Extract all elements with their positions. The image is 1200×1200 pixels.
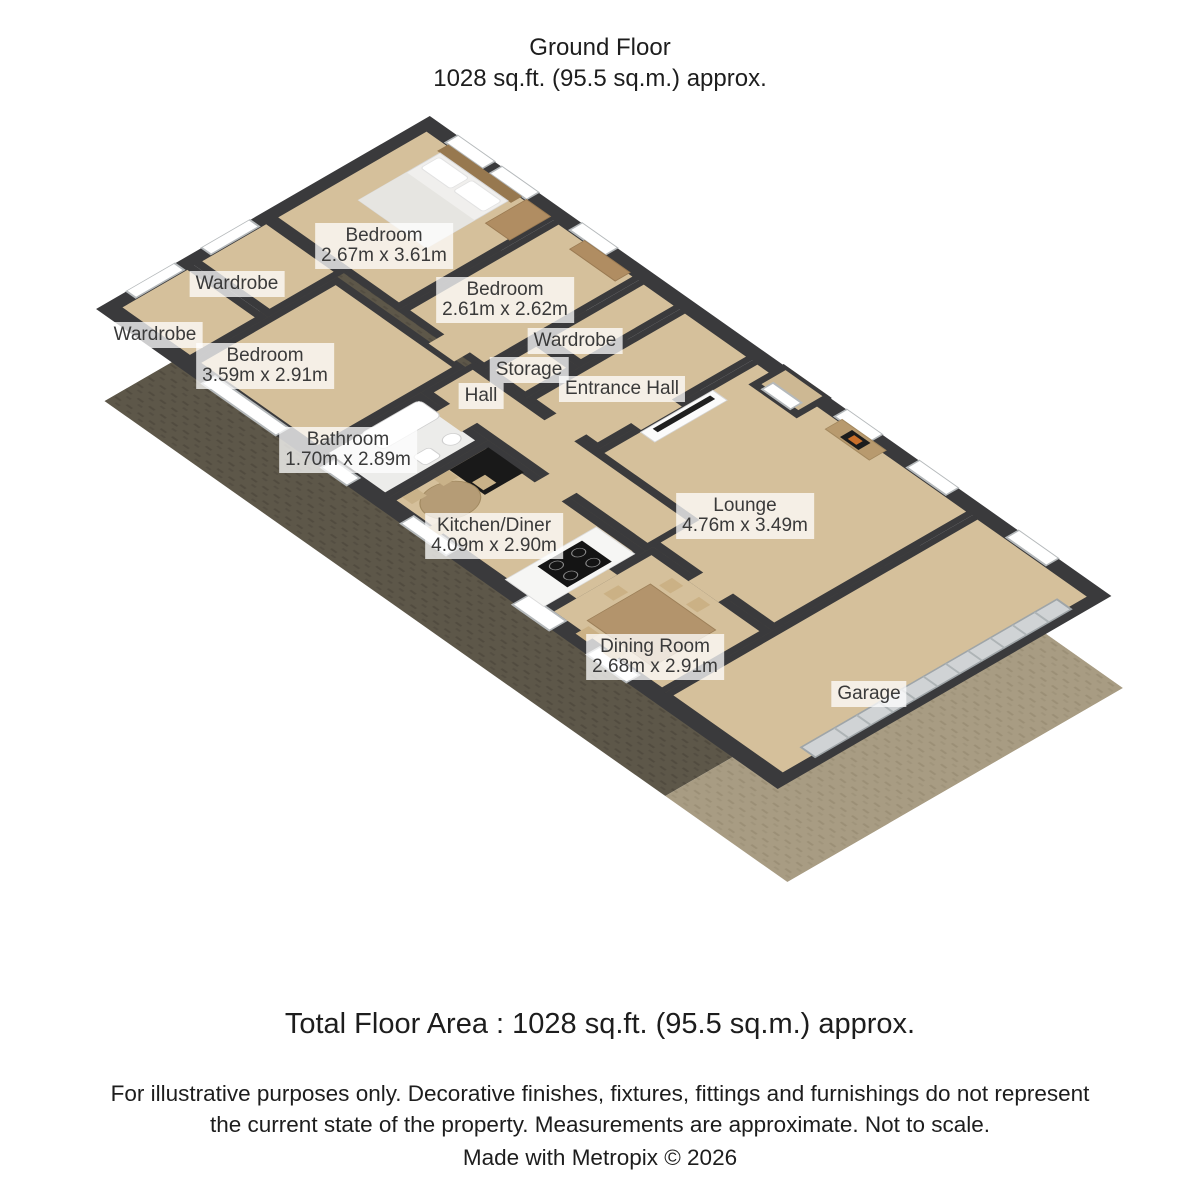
disclaimer-text: For illustrative purposes only. Decorati… xyxy=(95,1078,1105,1140)
page-title: Ground Floor xyxy=(0,32,1200,63)
credit-text: Made with Metropix © 2026 xyxy=(0,1145,1200,1171)
floorplan-page: Ground Floor 1028 sq.ft. (95.5 sq.m.) ap… xyxy=(0,0,1200,1200)
page-subtitle: 1028 sq.ft. (95.5 sq.m.) approx. xyxy=(0,63,1200,94)
total-floor-area: Total Floor Area : 1028 sq.ft. (95.5 sq.… xyxy=(0,1008,1200,1041)
plan-header: Ground Floor 1028 sq.ft. (95.5 sq.m.) ap… xyxy=(0,32,1200,94)
